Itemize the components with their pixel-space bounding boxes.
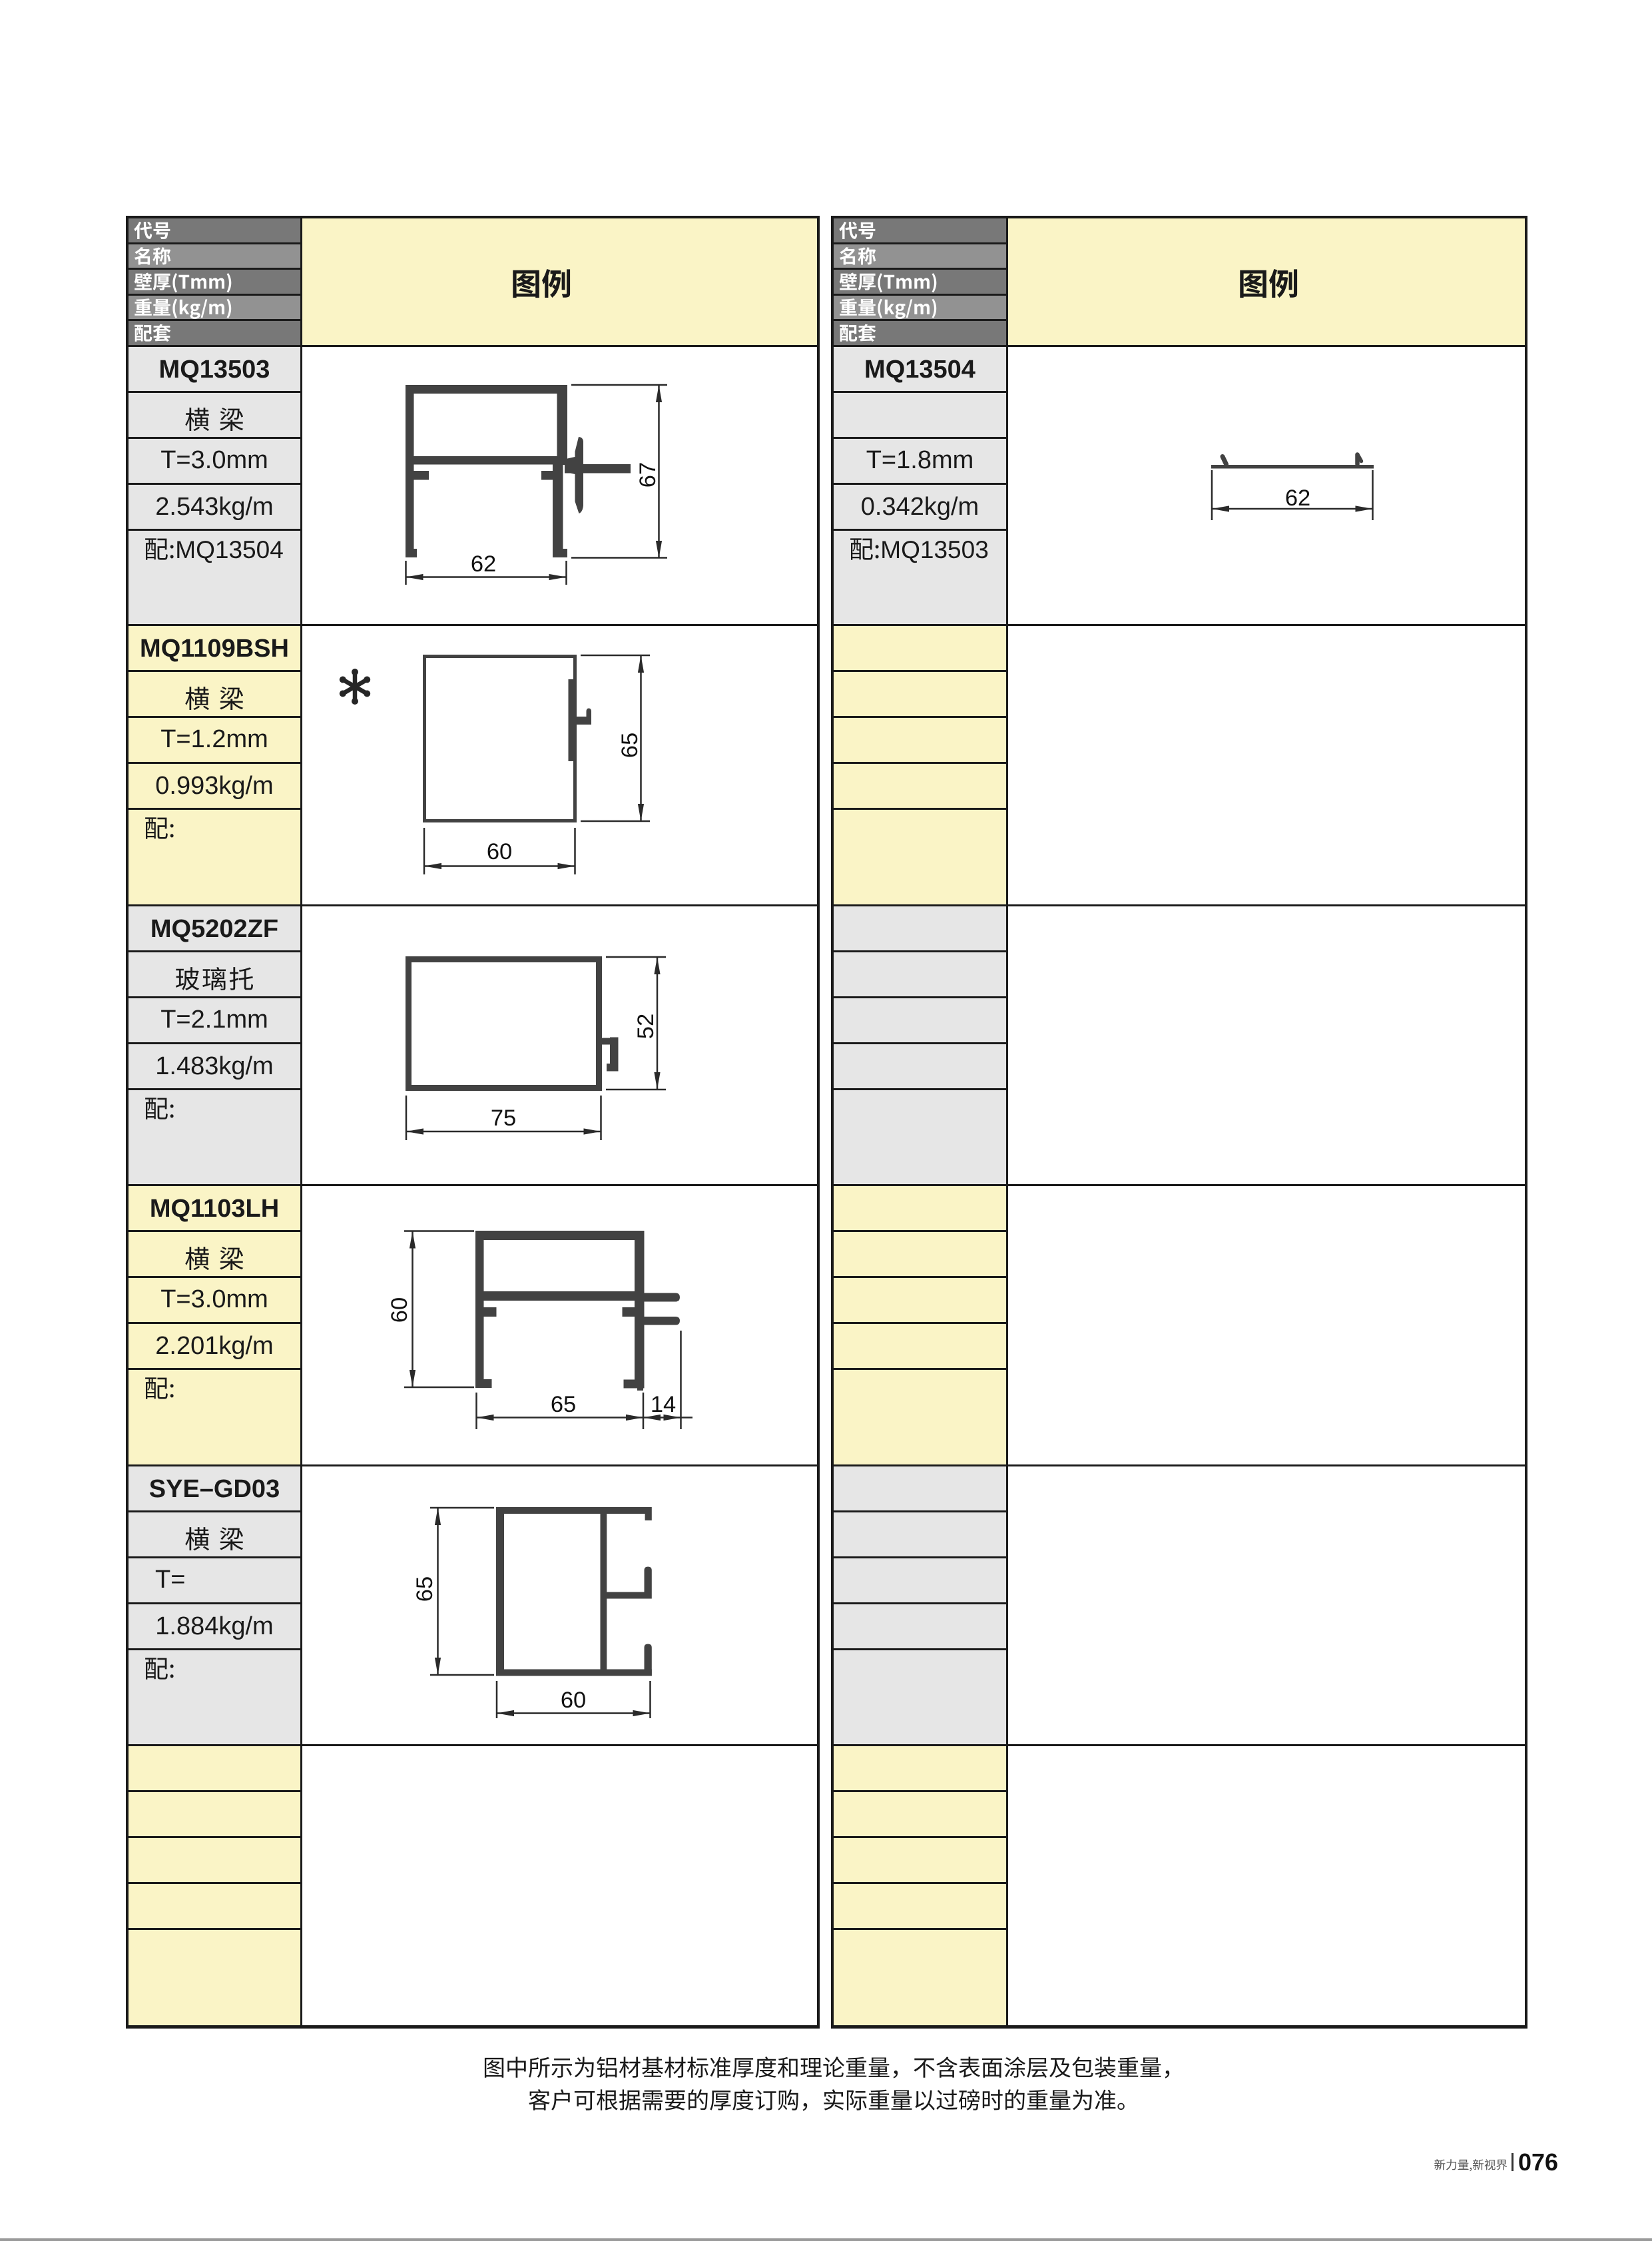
svg-text:52: 52 (633, 1014, 659, 1039)
svg-text:14: 14 (651, 1392, 676, 1417)
svg-text:60: 60 (387, 1297, 412, 1323)
svg-text:65: 65 (551, 1392, 576, 1417)
svg-text:65: 65 (617, 733, 643, 758)
svg-text:67: 67 (635, 462, 661, 487)
svg-text:62: 62 (471, 551, 496, 577)
svg-text:60: 60 (561, 1688, 586, 1713)
svg-text:60: 60 (487, 839, 512, 864)
svg-text:65: 65 (412, 1576, 437, 1602)
svg-text:75: 75 (491, 1106, 516, 1131)
svg-text:62: 62 (1285, 485, 1310, 511)
